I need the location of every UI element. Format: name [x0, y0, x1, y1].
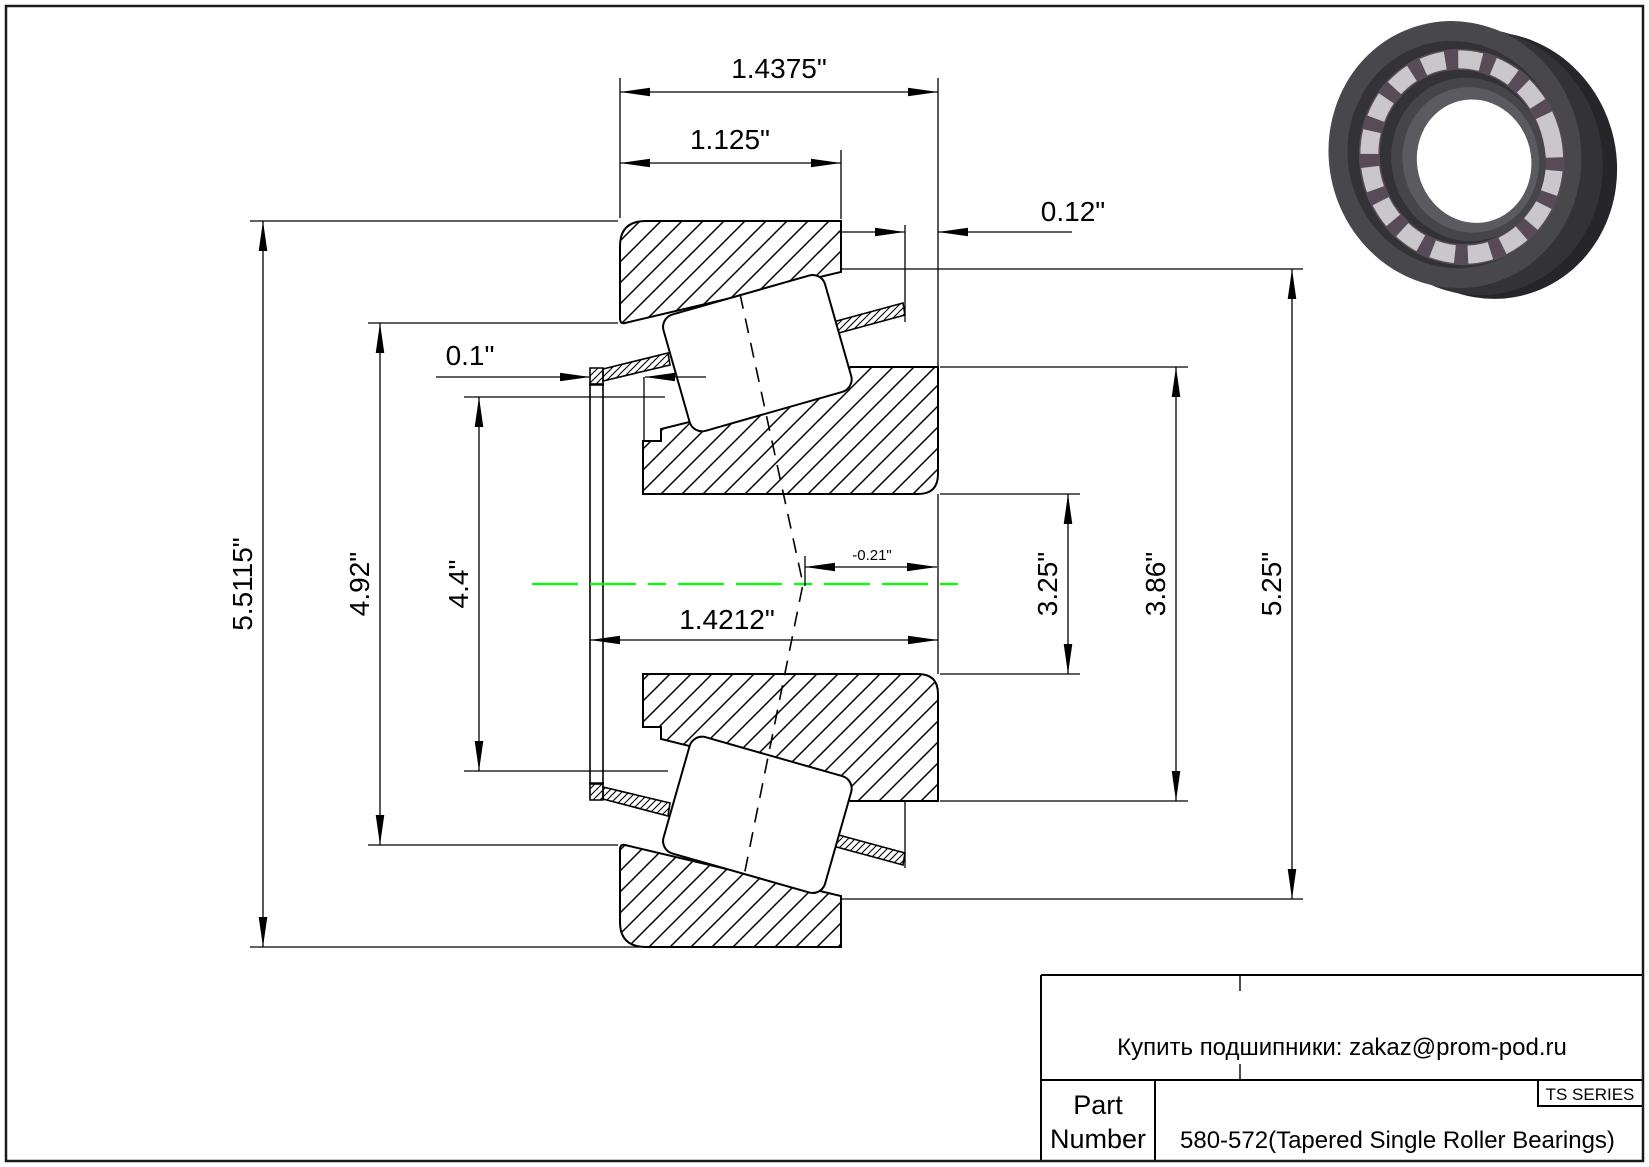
cup-race-diameter-label: 5.25" [1256, 552, 1287, 616]
series-badge: TS SERIES [1546, 1085, 1635, 1104]
drawing-page: 1.4375" 1.125" 0.12" 0.1" 1.4212" -0.21"… [0, 0, 1649, 1167]
cage-upper-lip [590, 368, 603, 385]
cup-width-label: 1.125" [690, 124, 770, 155]
overall-width-label: 1.4375" [731, 53, 827, 84]
supplier-note: Купить подшипники: zakaz@prom-pod.ru [1117, 1034, 1567, 1061]
part-label-line2: Number [1050, 1124, 1146, 1154]
cage-lower-strip-back [833, 834, 905, 865]
bore-diameter-label: 3.25" [1032, 552, 1063, 616]
back-face-offset-label: 0.12" [1041, 196, 1105, 227]
cage-protrusion-label: 0.1" [446, 340, 495, 371]
cone-width-label: 1.4212" [679, 604, 775, 635]
rib-diameter-label: 3.86" [1140, 552, 1171, 616]
cage-upper-strip-back [833, 303, 905, 334]
cage-lower-strip-front [603, 787, 670, 816]
race-small-diameter-label: 4.4" [443, 560, 474, 609]
effective-center-label: -0.21" [852, 547, 892, 564]
part-number-value: 580-572(Tapered Single Roller Bearings) [1180, 1127, 1615, 1154]
outer-diameter-label: 5.5115" [227, 537, 258, 631]
title-block-text: Купить подшипники: zakaz@prom-pod.ru Par… [1050, 1034, 1634, 1154]
cage-lower-lip [590, 783, 603, 800]
race-large-diameter-label: 4.92" [344, 552, 375, 616]
part-label-line1: Part [1073, 1090, 1123, 1120]
bearing-photo [1300, 0, 1645, 334]
